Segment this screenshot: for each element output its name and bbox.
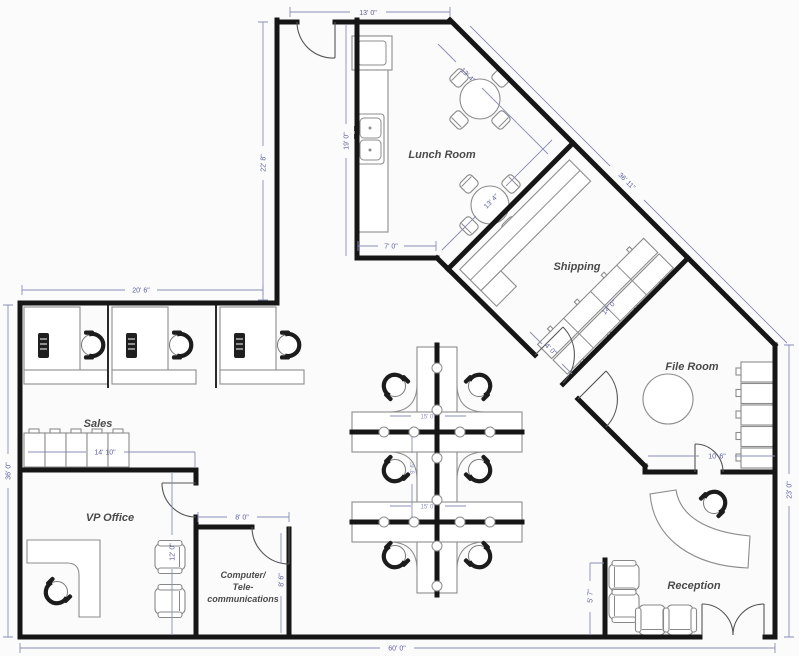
svg-text:19' 0": 19' 0" [344,132,351,150]
reception-chair [664,605,697,635]
sales-desk-3 [220,307,304,384]
dim-reception-wall: 5' 7" [588,563,605,635]
task-chair [39,574,75,610]
reception-desk [650,485,750,568]
dim-kitchen-wall: 19' 0" [344,25,351,256]
ship-room-label: Shipping [553,261,600,273]
corridor-door [297,22,335,58]
dim-computer-height: 8' 6" [279,533,286,633]
reception-label: Reception [667,580,720,592]
reception-chair [609,590,639,623]
svg-text:12' 0": 12' 0" [170,543,177,561]
file-room-table [643,374,693,424]
computer-room-door [252,527,289,564]
computer-tower-icon [234,333,245,358]
svg-text:10' 6": 10' 6" [708,454,726,461]
svg-text:Computer/: Computer/ [221,570,267,580]
svg-text:20' 6": 20' 6" [132,288,150,295]
dim-lunch-bottom: 7' 0" [358,241,436,251]
sales-workstations [24,305,304,388]
dim-upper-left-width: 20' 6" [22,285,263,295]
svg-text:8' 0": 8' 0" [235,515,249,522]
svg-text:9' 6": 9' 6" [411,462,417,474]
dim-top-width: 13' 0" [290,7,450,17]
svg-text:23' 0": 23' 0" [787,481,794,499]
dim-computer-width: 8' 0" [198,512,289,522]
task-chair [696,485,732,521]
svg-text:14' 10": 14' 10" [94,450,116,457]
svg-text:5' 7": 5' 7" [588,589,595,603]
svg-text:60' 0": 60' 0" [388,646,406,653]
dim-left-height: 36' 0" [3,305,13,637]
floor-plan-page: 13' 0" 22' 8" 20' 6" 36' 0" 60' 0" 23' 0… [0,0,799,656]
dim-upper-left-height: 22' 8" [258,22,268,300]
svg-text:15' 0": 15' 0" [421,505,436,511]
vp-office-door [162,483,196,517]
svg-text:7' 0": 7' 0" [384,244,398,251]
sales-desk-2 [112,307,196,384]
svg-text:36' 0": 36' 0" [6,462,13,480]
computer-tower-icon [38,333,49,358]
vp-guest-chair [155,585,185,618]
task-chair [82,331,104,360]
svg-text:15' 0": 15' 0" [421,415,436,421]
file-cabinets [736,362,775,468]
vp-desk [27,540,100,617]
computer-room-label: Computer/ Tele- communications [207,570,279,604]
entrance-double-door [702,604,764,635]
task-chair [278,331,300,360]
floor-plan-canvas: 13' 0" 22' 8" 20' 6" 36' 0" 60' 0" 23' 0… [0,0,799,656]
reception-chair [609,561,639,594]
svg-text:communications: communications [207,594,279,604]
vp-office-label: VP Office [86,512,134,524]
svg-text:13' 0": 13' 0" [359,10,377,17]
sales-desk-1 [24,307,108,384]
lunch-room-label: Lunch Room [408,149,475,161]
svg-text:Tele-: Tele- [233,582,254,592]
sales-label: Sales [84,418,113,430]
file-room-label: File Room [665,361,718,373]
lunch-table-1 [448,67,511,130]
computer-tower-icon [126,333,137,358]
task-chair [170,331,192,360]
dim-right-height: 23' 0" [784,345,794,637]
dim-bottom-width: 60' 0" [20,643,775,653]
sales-cabinets [24,429,129,467]
svg-text:8' 6": 8' 6" [279,573,286,587]
svg-text:22' 8": 22' 8" [261,154,268,172]
